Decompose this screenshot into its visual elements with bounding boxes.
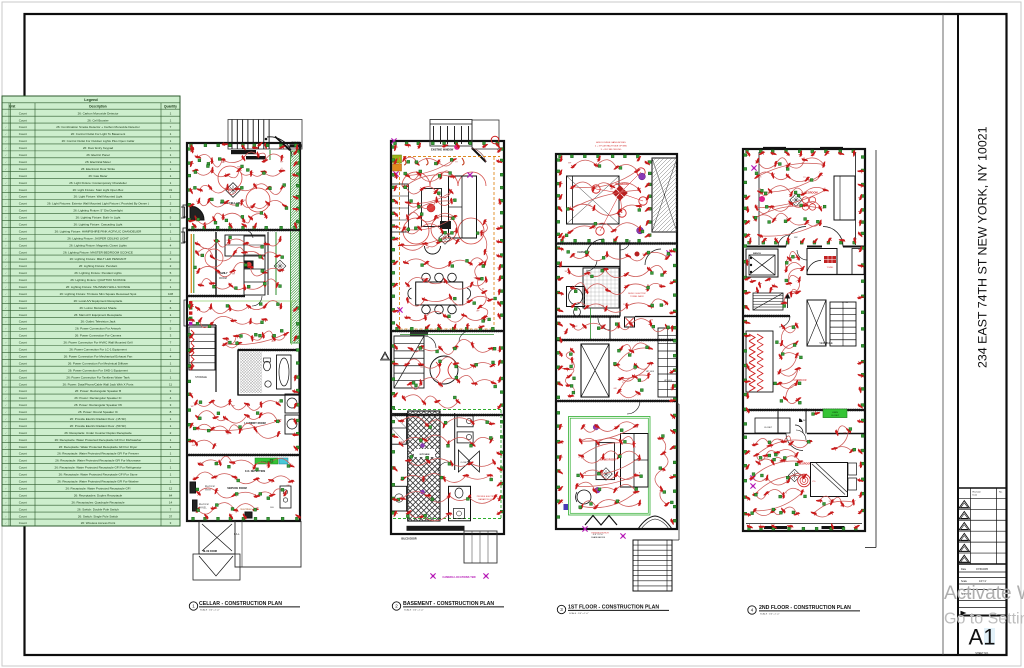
svg-text:S3: S3 [420,367,422,369]
svg-text:✓: ✓ [5,335,7,338]
svg-text:✓: ✓ [5,175,7,178]
svg-text:✓: ✓ [5,349,7,352]
svg-text:GFI: GFI [278,420,282,422]
svg-text:Count: Count [19,125,27,129]
svg-text:✓: ✓ [5,355,7,358]
svg-text:SCALE : 1/4" = 1'-0": SCALE : 1/4" = 1'-0" [760,612,780,615]
svg-text:Count: Count [19,348,27,352]
svg-text:✓: ✓ [5,307,7,310]
svg-text:✓: ✓ [5,342,7,345]
svg-text:✓: ✓ [5,418,7,421]
svg-text:1ST FLOOR - CONSTRUCTION PLAN: 1ST FLOOR - CONSTRUCTION PLAN [568,604,659,610]
svg-text:Count: Count [19,313,27,317]
svg-text:TOWEL RACK: TOWEL RACK [630,295,644,298]
svg-text:UP 16 R: UP 16 R [664,380,673,382]
svg-text:26: Power: Rectangular Speaker: 26: Power: Rectangular Speaker IC [74,396,122,400]
svg-text:Count: Count [19,403,27,407]
svg-text:✓: ✓ [5,432,7,435]
svg-text:✓: ✓ [5,522,7,525]
svg-text:CORRIDOR: CORRIDOR [793,379,806,382]
svg-text:26: Receptacle: Water Protecte: 26: Receptacle: Water Protected Receptac… [57,452,138,456]
svg-text:GFI: GFI [192,445,196,447]
svg-text:Count: Count [19,236,27,240]
svg-text:J: J [449,517,450,519]
svg-text:37: 37 [169,514,173,518]
svg-text:S3: S3 [226,434,228,436]
svg-text:✓: ✓ [5,362,7,365]
svg-text:BEDROOM: BEDROOM [615,183,628,186]
svg-text:No.: No. [999,492,1003,494]
svg-text:26: Power Connection For Tankl: 26: Power Connection For Tankless Water … [66,375,130,379]
svg-text:A1: A1 [969,625,996,650]
svg-text:S3: S3 [482,289,484,291]
svg-text:SCALE : 1/4" = 1'-0": SCALE : 1/4" = 1'-0" [569,612,589,615]
svg-text:26: Lighting Fixture: QUATTRO: 26: Lighting Fixture: QUATTRO SCONCE [70,278,125,282]
svg-text:GFI: GFI [287,485,291,487]
svg-text:GFI: GFI [602,325,606,327]
svg-text:S3: S3 [423,279,425,281]
svg-text:26: Light Fixture: Stair Light: 26: Light Fixture: Stair Light Open Box [73,188,124,192]
svg-text:GFI: GFI [610,188,614,190]
svg-text:Count: Count [19,438,27,442]
svg-text:Count: Count [19,292,27,296]
svg-text:Count: Count [19,181,27,185]
svg-text:26: Cell Booster: 26: Cell Booster [87,118,108,122]
svg-text:S3: S3 [437,218,439,220]
svg-text:234 EAST 74TH ST NEW YORK, NY: 234 EAST 74TH ST NEW YORK, NY 10021 [976,126,990,368]
svg-text:Count: Count [19,417,27,421]
svg-text:✓: ✓ [5,481,7,484]
svg-text:✓: ✓ [5,328,7,331]
svg-text:26: Carbon Monoxide Detector: 26: Carbon Monoxide Detector [78,111,119,115]
svg-text:Count: Count [19,480,27,484]
svg-text:Go to Settings to activate: Go to Settings to activate [944,611,1024,628]
svg-text:26: Receptacle: Under Counter: 26: Receptacle: Under Counter Duplex Rec… [64,431,132,435]
svg-text:26: Lighting Fixture: Magnetic: 26: Lighting Fixture: Magnetic Closet Li… [69,243,127,247]
svg-text:J: J [256,433,257,435]
svg-text:✓: ✓ [5,244,7,247]
svg-text:DEDIC. ELECTRIC: DEDIC. ELECTRIC [628,293,646,295]
svg-text:✓: ✓ [5,147,7,150]
svg-text:S3: S3 [635,427,637,429]
svg-text:GFI: GFI [763,480,767,482]
svg-text:✓: ✓ [5,272,7,275]
svg-text:26: Door Entry Keypad: 26: Door Entry Keypad [83,146,114,150]
svg-text:✓: ✓ [5,321,7,324]
svg-text:26: Lighting Fixture: TALISMAN: 26: Lighting Fixture: TALISMAN WALL SCON… [66,285,130,289]
svg-text:J: J [194,155,195,157]
svg-text:Count: Count [19,188,27,192]
svg-text:26: Provide Electric Radiant F: 26: Provide Electric Radiant Floor -(15 … [70,417,127,421]
svg-text:GFI: GFI [243,200,247,202]
svg-text:Count: Count [19,382,27,386]
svg-text:26: Power: Rectangular Speaker: 26: Power: Rectangular Speaker IW [74,403,122,407]
svg-text:3 + IN 2 BR CEILING: 3 + IN 2 BR CEILING [601,149,622,151]
svg-text:SCALE : 1/4" = 1'-0": SCALE : 1/4" = 1'-0" [200,608,220,611]
svg-text:26: Switch: Double Pole Switch: 26: Switch: Double Pole Switch [77,507,119,511]
svg-text:26: Main A/V Equipment Recepta: 26: Main A/V Equipment Receptacle [74,313,122,317]
svg-text:S3: S3 [229,189,231,191]
svg-text:✓: ✓ [5,446,7,449]
svg-text:✓: ✓ [5,230,7,233]
svg-text:Count: Count [19,250,27,254]
svg-text:BASEMENT - CONSTRUCTION PLAN: BASEMENT - CONSTRUCTION PLAN [403,601,494,607]
svg-text:J: J [799,268,800,270]
svg-text:Count: Count [19,139,27,143]
svg-text:Count: Count [19,153,27,157]
svg-text:GFI: GFI [569,209,573,211]
svg-text:GFI: GFI [769,193,773,195]
svg-text:12: 12 [169,486,173,490]
svg-text:GFI: GFI [232,273,236,275]
svg-text:31: 31 [169,188,173,192]
svg-text:Description: Description [89,105,107,109]
svg-text:ADD DOUBLE GANG BOXES: ADD DOUBLE GANG BOXES [596,141,626,144]
svg-text:J: J [786,492,787,494]
svg-text:Count: Count [19,285,27,289]
svg-text:LAUNDRY ROOM: LAUNDRY ROOM [244,421,265,425]
svg-text:26: Lighting Fixture: Pendant: 26: Lighting Fixture: Pendant [79,264,118,268]
svg-text:S3: S3 [634,369,636,371]
svg-text:Count: Count [19,486,27,490]
svg-text:Count: Count [19,368,27,372]
svg-text:Count: Count [19,389,27,393]
svg-text:26: Power Connection For Mechn: 26: Power Connection For Mechnical Diffu… [68,361,128,365]
svg-text:Count: Count [19,278,27,282]
svg-text:GFI: GFI [426,248,430,250]
svg-text:26: Power Connection For Camer: 26: Power Connection For Camera [75,334,122,338]
svg-text:✓: ✓ [5,474,7,477]
svg-text:PROVIDE ELECTRIC: PROVIDE ELECTRIC [477,496,496,498]
svg-text:26: Lighting Fixture: 5" Dia D: 26: Lighting Fixture: 5" Dia Downlight [73,209,122,213]
svg-text:✓: ✓ [5,383,7,386]
svg-text:✓: ✓ [5,494,7,497]
svg-text:✓: ✓ [5,161,7,164]
svg-text:Count: Count [19,341,27,345]
svg-text:26: Receptacle: Water Protecte: 26: Receptacle: Water Protected Receptac… [59,473,138,477]
svg-text:Count: Count [19,146,27,150]
svg-text:S3: S3 [840,506,842,508]
svg-text:Count: Count [19,167,27,171]
svg-text:LINEN: LINEN [832,412,838,414]
svg-text:S3: S3 [407,365,409,367]
svg-text:S3: S3 [467,300,469,302]
svg-text:26: Power: Rectangular Speaker: 26: Power: Rectangular Speaker B [75,389,121,393]
svg-text:✓: ✓ [5,154,7,157]
svg-text:Count: Count [19,473,27,477]
svg-text:Count: Count [19,410,27,414]
svg-text:✓: ✓ [5,425,7,428]
svg-text:26: Lighting Fixture: Built- I: 26: Lighting Fixture: Built- In Light [76,216,121,220]
svg-text:2 + 3 FL AT EACH SIDE OF BED: 2 + 3 FL AT EACH SIDE OF BED [595,145,628,148]
svg-text:Count: Count [19,222,27,226]
svg-text:Count: Count [19,111,27,115]
svg-text:64: 64 [169,493,173,497]
svg-text:✓: ✓ [5,189,7,192]
svg-text:26: Control Outlet For Outdoor: 26: Control Outlet For Outdoor Lights Pl… [62,139,135,143]
svg-text:26: Power Connection For Mecha: 26: Power Connection For Mechanical Exha… [64,354,133,358]
svg-text:Quantity: Quantity [164,105,177,109]
svg-text:2ND FLOOR - CONSTRUCTION PLAN: 2ND FLOOR - CONSTRUCTION PLAN [759,605,851,611]
svg-text:26: Electric Panel: 26: Electric Panel [86,153,110,157]
svg-text:Count: Count [19,320,27,324]
svg-text:BILCO DOOR: BILCO DOOR [401,538,417,541]
svg-text:✓: ✓ [5,369,7,372]
svg-text:J: J [787,301,788,303]
svg-text:✓: ✓ [5,515,7,518]
svg-text:EXISTING WINDOW: EXISTING WINDOW [431,149,454,152]
svg-text:26: Receptacle: Water Protecte: 26: Receptacle: Water Protected Receptac… [66,486,131,490]
svg-text:GFI: GFI [227,240,231,242]
svg-text:Date: Date [961,568,967,571]
svg-text:S3: S3 [473,363,475,365]
svg-text:26: Power Connection For LC-1: 26: Power Connection For LC-1 Equipment [69,348,127,352]
svg-text:Count: Count [19,452,27,456]
svg-text:26: Provide Electric Radiant F: 26: Provide Electric Radiant Floor -(59 … [70,424,127,428]
svg-text:SEE: SEE [270,507,275,509]
svg-text:Count: Count [19,431,27,435]
svg-text:J: J [419,228,420,230]
svg-text:Count: Count [19,445,27,449]
svg-text:✓: ✓ [5,119,7,122]
svg-text:Count: Count [19,500,27,504]
svg-text:Count: Count [19,160,27,164]
svg-text:Legend: Legend [84,98,98,102]
svg-text:S3: S3 [844,433,846,435]
svg-text:26: Control Outlet For Light T: 26: Control Outlet For Light To Basement [71,132,126,136]
svg-text:Count: Count [19,264,27,268]
svg-text:✓: ✓ [5,397,7,400]
svg-text:Count: Count [19,229,27,233]
svg-text:UP 16 R: UP 16 R [646,371,655,373]
svg-text:26: Receptacle: Water Protecte: 26: Receptacle: Water Protected Receptac… [57,480,138,484]
svg-text:✓: ✓ [5,182,7,185]
svg-text:26: Receptacle: Water Protecte: 26: Receptacle: Water Protected Receptac… [55,466,142,470]
svg-text:Count: Count [19,118,27,122]
svg-text:CLOSET: CLOSET [764,427,773,429]
svg-text:J: J [268,285,269,287]
svg-text:108: 108 [168,292,173,296]
svg-text:Count: Count [19,132,27,136]
svg-text:Count: Count [19,306,27,310]
svg-text:Count: Count [19,493,27,497]
svg-text:✓: ✓ [5,300,7,303]
svg-text:26: Lighting Fixture: HAMPSHIR: 26: Lighting Fixture: HAMPSHIRE PINK ACR… [55,229,142,233]
svg-text:S3: S3 [589,205,591,207]
svg-text:BLUE DOOR: BLUE DOOR [203,550,218,553]
svg-text:26: Power: Round Speaker IC: 26: Power: Round Speaker IC [78,410,119,414]
svg-text:J: J [819,172,820,174]
svg-text:26: Light Fixture: Wall Mounte: 26: Light Fixture: Wall Mounted Light [74,195,123,199]
svg-text:26: Lighting Fixture: Trimless: 26: Lighting Fixture: Trimless Slim Squa… [60,292,137,296]
svg-text:26: Light Fixtures: Exterior W: 26: Light Fixtures: Exterior Wall Mounte… [47,202,149,206]
svg-text:J: J [211,308,212,310]
svg-text:J: J [789,177,790,179]
svg-text:26: Combination Smoke Detector: 26: Combination Smoke Detector + Carbon … [56,125,139,129]
svg-text:C.O. DETECTION: C.O. DETECTION [245,470,265,473]
svg-text:14: 14 [169,500,173,504]
svg-text:UP 16 R: UP 16 R [603,401,611,403]
svg-text:26: Outlet: Television Jack: 26: Outlet: Television Jack [81,320,116,324]
svg-text:EXISTING PORCH: EXISTING PORCH [591,533,609,535]
svg-text:CLOSET: CLOSET [831,415,840,417]
svg-text:Revision: Revision [973,492,982,494]
svg-text:WIC: WIC [794,237,798,239]
svg-text:26: Lutron Motorized Shade: 26: Lutron Motorized Shade [79,306,116,310]
svg-text:✓: ✓ [5,487,7,490]
svg-text:Count: Count [19,424,27,428]
svg-text:GFI: GFI [614,388,618,390]
svg-text:✓: ✓ [5,279,7,282]
svg-text:J: J [250,206,251,208]
svg-text:CELLAR - CONSTRUCTION PLAN: CELLAR - CONSTRUCTION PLAN [199,601,282,607]
svg-text:J: J [472,342,473,344]
svg-text:26: Receptacle: Water Protecte: 26: Receptacle: Water Protected Receptac… [55,438,142,442]
svg-text:26: Lighting Fixture: JASPER C: 26: Lighting Fixture: JASPER CEILING LIG… [67,236,129,240]
svg-text:Count: Count [19,209,27,213]
svg-text:Count: Count [19,521,27,525]
svg-text:BEDROOM: BEDROOM [799,463,811,466]
svg-text:CHASE ABOVE: CHASE ABOVE [591,536,606,539]
svg-text:26: Electrical Meter: 26: Electrical Meter [85,160,111,164]
svg-text:✓: ✓ [5,126,7,129]
svg-text:✓: ✓ [5,223,7,226]
svg-text:07/30/2005: 07/30/2005 [976,568,989,571]
svg-text:26: Power Connection For HVAC: 26: Power Connection For HVAC Wall Mount… [63,341,132,345]
svg-text:✓: ✓ [5,258,7,261]
svg-text:KITCHEN: KITCHEN [420,454,430,456]
svg-text:PANEL: PANEL [199,507,207,510]
svg-text:26: Lighting Fixture: MELT LED: 26: Lighting Fixture: MELT LED PENDANT [70,257,127,261]
svg-text:Count: Count [19,396,27,400]
svg-text:✓: ✓ [5,376,7,379]
svg-text:Count: Count [19,202,27,206]
svg-text:LIVING ROOM: LIVING ROOM [600,460,616,462]
svg-text:✓: ✓ [5,501,7,504]
svg-text:26: Receptacles: Quadruple Rec: 26: Receptacles: Quadruple Receptacle [71,500,124,504]
svg-text:Count: Count [19,299,27,303]
svg-text:✓: ✓ [5,210,7,213]
svg-text:✓: ✓ [5,133,7,136]
svg-text:✓: ✓ [5,508,7,511]
svg-text:ROOM: ROOM [219,277,226,280]
svg-text:Count: Count [19,361,27,365]
svg-text:26: Switch: Single Pole Switch: 26: Switch: Single Pole Switch [78,514,119,518]
svg-text:GFI: GFI [596,167,600,169]
svg-text:26: Power Connection For SHD-1: 26: Power Connection For SHD-1 Equipment [68,368,128,372]
svg-text:S3: S3 [758,189,760,191]
svg-text:CLOSET: CLOSET [460,462,468,464]
svg-text:26: Local A/V Equipment Recept: 26: Local A/V Equipment Receptacle [74,299,123,303]
svg-text:✓: ✓ [5,217,7,220]
svg-text:SERVICE ROOM: SERVICE ROOM [227,487,246,490]
svg-text:✓: ✓ [5,404,7,407]
svg-text:26: Lighting Fixture: MASTER B: 26: Lighting Fixture: MASTER BEDROOM SCO… [63,250,133,254]
svg-text:✓: ✓ [5,460,7,463]
svg-text:Count: Count [19,334,27,338]
svg-text:✓: ✓ [5,453,7,456]
svg-text:Count: Count [19,507,27,511]
svg-text:26: Receptacles: Duplex Recept: 26: Receptacles: Duplex Receptacle [74,493,123,497]
svg-text:Count: Count [19,243,27,247]
svg-text:✓: ✓ [5,411,7,414]
svg-text:26: Light Fixture: Contemporar: 26: Light Fixture: Contemporary Chandeli… [69,181,127,185]
svg-text:✓: ✓ [5,140,7,143]
svg-text:✓: ✓ [5,112,7,115]
svg-text:26: Receptacle: Water Protecte: 26: Receptacle: Water Protected Receptac… [55,459,141,463]
svg-text:Count: Count [19,354,27,358]
svg-text:Activate Windows: Activate Windows [944,583,1024,604]
svg-text:✓: ✓ [5,237,7,240]
svg-text:✓: ✓ [5,251,7,254]
svg-text:26: Lighting Fixture: Pendant: 26: Lighting Fixture: Pendant Lights [74,271,122,275]
svg-text:11: 11 [169,382,172,386]
svg-text:✓: ✓ [5,439,7,442]
svg-text:J: J [572,354,573,356]
svg-text:J: J [796,281,797,283]
svg-text:Date: Date [973,494,978,497]
svg-text:✓: ✓ [5,203,7,206]
svg-text:J: J [292,465,293,467]
svg-text:LTG: LTG [812,481,816,483]
svg-text:Meter: Meter [205,489,211,492]
svg-text:GFI: GFI [256,507,260,509]
svg-text:26: Wireless Access Point: 26: Wireless Access Point [81,521,116,525]
svg-text:✓: ✓ [5,467,7,470]
svg-text:TOWEL: TOWEL [827,267,834,269]
svg-text:26: Electronic Door Strike: 26: Electronic Door Strike [81,167,115,171]
svg-text:Count: Count [19,466,27,470]
svg-text:S3: S3 [407,174,409,176]
svg-text:Count: Count [19,257,27,261]
svg-text:26: Power: Data/Phone/Cable Wa: 26: Power: Data/Phone/Cable Wall Jack Wi… [63,382,134,386]
svg-text:SCALE : 1/4" = 1'-0": SCALE : 1/4" = 1'-0" [404,608,424,611]
svg-text:S3: S3 [651,320,653,322]
svg-text:✓: ✓ [5,390,7,393]
svg-text:GFI: GFI [778,440,782,442]
svg-text:STORAGE: STORAGE [195,376,207,379]
svg-text:✓: ✓ [5,265,7,268]
svg-text:Count: Count [19,195,27,199]
svg-text:✓: ✓ [5,293,7,296]
svg-text:Count: Count [19,514,27,518]
svg-text:S3: S3 [565,271,567,273]
svg-text:Count: Count [19,327,27,331]
svg-text:CAMERA LOCATIONS TBD: CAMERA LOCATIONS TBD [442,575,475,579]
svg-text:✓: ✓ [5,196,7,199]
svg-text:Count: Count [19,459,27,463]
svg-text:✓: ✓ [5,168,7,171]
svg-text:26: Lighting Fixture: Cascadin: 26: Lighting Fixture: Cascading Light [74,222,123,226]
svg-text:✓: ✓ [5,286,7,289]
svg-text:26: Power Connection For Artwo: 26: Power Connection For Artwork [75,327,121,331]
svg-text:✓: ✓ [5,314,7,317]
svg-text:Count: Count [19,271,27,275]
svg-text:Count: Count [19,216,27,220]
svg-text:26: Gas Meter: 26: Gas Meter [88,174,107,178]
svg-text:Count: Count [19,174,27,178]
svg-text:Gas Meter: Gas Meter [240,508,251,511]
svg-text:26: Receptacle: Water Protecte: 26: Receptacle: Water Protected Receptac… [59,445,137,449]
svg-text:Count: Count [19,375,27,379]
